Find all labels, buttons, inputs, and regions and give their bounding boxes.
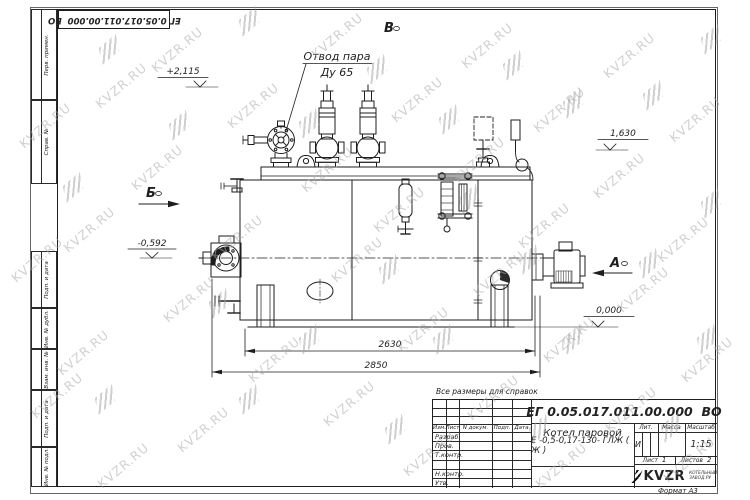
safety-valve-1 [310,85,344,167]
level-mark-right [596,140,648,151]
lifting-lug-left [297,156,315,168]
view-letter-v: В [384,21,394,36]
steam-platform [261,167,530,180]
drain-fitting [215,296,240,313]
sensor-box-dashed [474,117,493,140]
boiler-linework [128,27,648,378]
sampling-valve [477,140,490,167]
view-mark-v-ellipse [394,27,400,31]
callout-leader [286,64,306,131]
view-letter-b: Б [146,186,156,201]
support-leg-left [257,285,274,327]
callout-steam-outlet: Отвод пара [303,50,370,63]
boiler-assembly-drawing: Отвод пара Ду 65 +2,115 1,630 -0,592 0,0… [0,0,750,500]
dim-text-2850: 2850 [365,361,388,371]
support-leg-right [491,285,508,327]
level-mark-valve-top [158,78,218,88]
level-mark-burner-axis [128,249,176,258]
view-letter-a: А [609,256,620,271]
feed-pump-motor [532,242,585,288]
water-level-indicator [438,173,472,232]
dim-text-2630: 2630 [379,340,402,350]
level-ground: 0,000 [596,306,622,316]
callout-dn65: Ду 65 [320,66,354,79]
level-valve-top: +2,115 [166,67,200,77]
boiler-shell [240,180,532,320]
safety-valve-2 [351,85,385,167]
level-burner-axis: -0,592 [137,239,166,249]
burner-assembly [199,236,241,277]
level-right: 1,630 [610,129,636,139]
water-gauge-cylinder [398,179,413,234]
level-mark-ground [584,317,634,328]
drawing-sheet: Перв. примен. Справ. № Подп. и дата Инв.… [0,0,750,500]
